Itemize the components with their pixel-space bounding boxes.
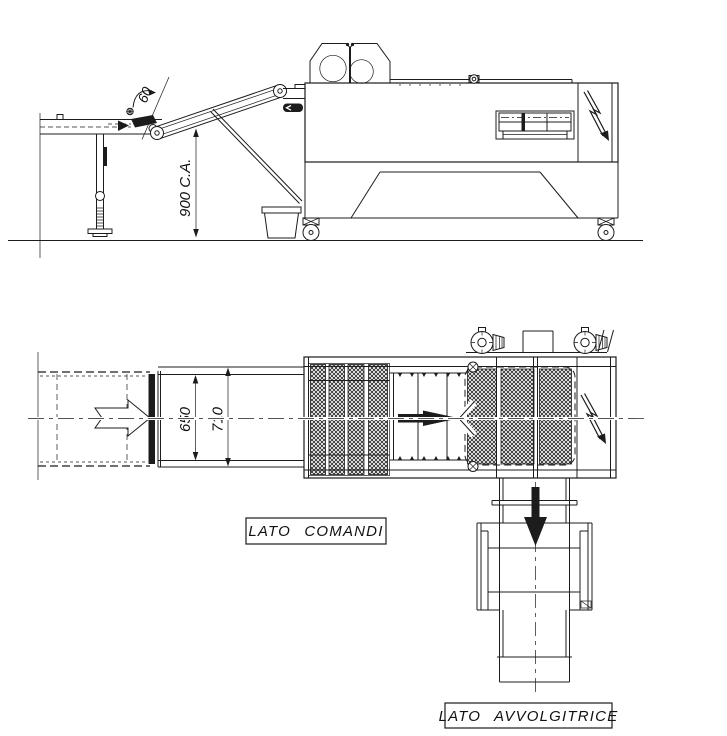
- base-frame: [305, 162, 618, 218]
- caster-wheel-left: [303, 218, 319, 241]
- winder-unit: [477, 523, 592, 682]
- handwheel-left: [471, 328, 504, 354]
- winder-side-label-text: LATO AVVOLGITRICE: [439, 708, 619, 725]
- scrap-bucket: [262, 207, 301, 238]
- side-elevation-view: 60 9: [8, 43, 643, 258]
- film-roll-housing: [310, 43, 390, 83]
- diagonal-brace: [211, 109, 303, 204]
- caster-wheel-right: [598, 218, 614, 241]
- technical-drawing-sheet: 60 9: [0, 0, 727, 736]
- control-side-label-text: LATO COMANDI: [248, 523, 383, 540]
- label-lato-comandi: LATO COMANDI: [246, 518, 386, 544]
- label-lato-avvolgitrice: LATO AVVOLGITRICE: [439, 703, 619, 728]
- handwheel-right: [574, 328, 607, 354]
- entry-bracket: [283, 85, 305, 113]
- dimension-60-text: 60: [134, 84, 155, 105]
- film-reel-assembly: [466, 328, 614, 354]
- flow-arrow-outfeed: [524, 487, 547, 546]
- support-leg: [88, 134, 112, 237]
- electric-hazard-bolt-icon-side: [584, 91, 609, 142]
- bolt-top: [468, 362, 478, 372]
- dimension-900-text: 900 C.A.: [177, 159, 194, 217]
- bolt-bottom: [468, 462, 478, 472]
- tunnel-roller-section: [390, 373, 468, 460]
- film-roll-right: [350, 60, 374, 84]
- dimension-900-ca: 900 C.A.: [177, 129, 199, 238]
- winder-motor-detail: [581, 601, 591, 608]
- machine-drawing: 60 9: [0, 0, 727, 736]
- pivot-mark: [127, 108, 133, 114]
- control-panel: [496, 111, 574, 139]
- top-knob: [469, 75, 479, 83]
- plan-view: 650 710: [28, 328, 648, 729]
- film-roll-left: [320, 55, 346, 81]
- inclined-elevator-conveyor: [151, 85, 287, 140]
